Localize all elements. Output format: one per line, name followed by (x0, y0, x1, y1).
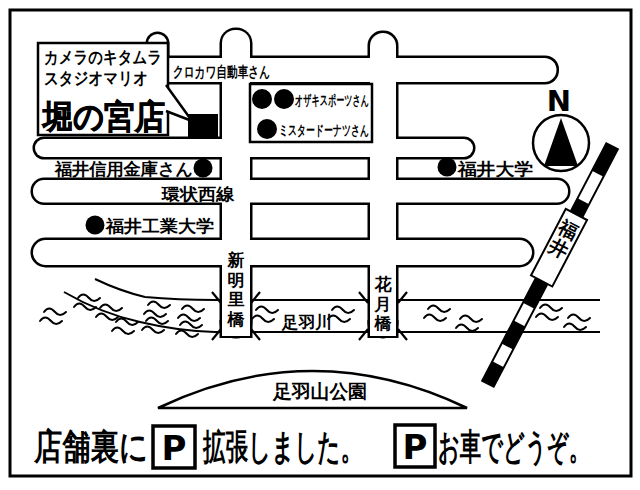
store-access-map: 福井 カメラのキタムラ スタジオマリオ 堀の宮店 クロカワ自動車さん オザキスポ… (0, 0, 640, 490)
kagetsu-bridge-label: 花月橋 (374, 274, 393, 333)
callout-store-name: 堀の宮店 (41, 97, 165, 136)
ozaki-dot2-icon (274, 89, 294, 109)
bank-dot-icon (194, 159, 213, 178)
ozaki-dot-icon (252, 89, 272, 109)
store-location-marker (188, 114, 218, 139)
fukui-university-dot-icon (438, 158, 457, 177)
footer-suffix: 拡張しました。 (202, 426, 363, 467)
mister-donut-dot-icon (257, 119, 277, 139)
mister-donut-label: ミスタードーナツさん (279, 122, 369, 138)
fukui-tech-university-label: 福井工業大学 (105, 216, 214, 236)
ring-west-line-label: 環状西線 (161, 184, 235, 204)
parking-symbol2: P (403, 427, 428, 467)
fukui-shinkin-bank-label: 福井信用金庫さん (54, 159, 193, 179)
footer-note: 店舗裏に P 拡張しました。 P お車でどうぞ。 (33, 425, 590, 468)
asuwayama-park-label: 足羽山公園 (272, 380, 367, 402)
shin-akari-bridge-label: 新明里橋 (227, 250, 246, 329)
fukui-university-label: 福井大学 (457, 159, 533, 179)
compass-north-label: N (547, 84, 571, 118)
parking-symbol: P (162, 428, 187, 468)
callout-brand-line2: スタジオマリオ (44, 68, 148, 88)
footer-prefix: 店舗裏に (33, 426, 148, 467)
kurokawa-auto-label: クロカワ自動車さん (173, 63, 270, 81)
map-canvas: 福井 カメラのキタムラ スタジオマリオ 堀の宮店 クロカワ自動車さん オザキスポ… (0, 0, 640, 490)
callout-brand-line1: カメラのキタムラ (44, 47, 162, 67)
ozaki-sports-label: オザキスポーツさん (295, 92, 369, 108)
footer-car-note: お車でどうぞ。 (438, 426, 590, 467)
fukui-tech-dot-icon (86, 216, 105, 235)
asuwa-river-label: 足羽川 (281, 312, 332, 332)
